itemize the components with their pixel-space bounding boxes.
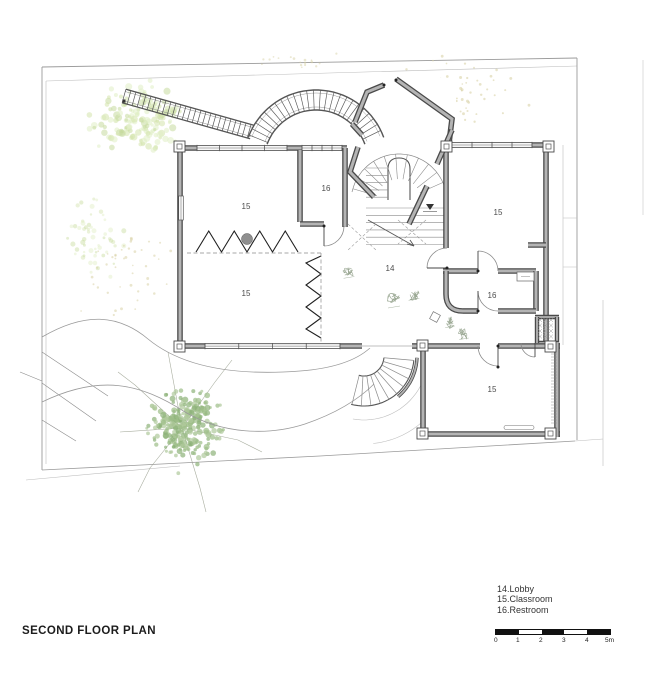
floor-plan-sheet: 15 16 15 14 15 16 15 SECOND FLOOR PLAN 1… (0, 0, 650, 674)
scale-bar: 0 1 2 3 4 5m (495, 629, 611, 644)
room-label-restroom-right: 16 (488, 291, 497, 300)
legend-item-restroom: 16.Restroom (497, 605, 553, 615)
room-label-classroom-bottom-left: 15 (242, 289, 251, 298)
room-label-classroom-top-right: 15 (494, 208, 503, 217)
room-label-classroom-top-left: 15 (242, 202, 251, 211)
legend-item-lobby: 14.Lobby (497, 584, 553, 594)
legend: 14.Lobby 15.Classroom 16.Restroom (497, 584, 553, 615)
page-title: SECOND FLOOR PLAN (22, 625, 156, 637)
room-label-restroom-top: 16 (322, 184, 331, 193)
legend-item-classroom: 15.Classroom (497, 594, 553, 604)
floor-plan-canvas: 15 16 15 14 15 16 15 (0, 0, 650, 674)
room-label-lobby: 14 (386, 264, 395, 273)
room-label-classroom-bottom: 15 (488, 385, 497, 394)
scale-bar-numbers: 0 1 2 3 4 5m (495, 635, 611, 644)
